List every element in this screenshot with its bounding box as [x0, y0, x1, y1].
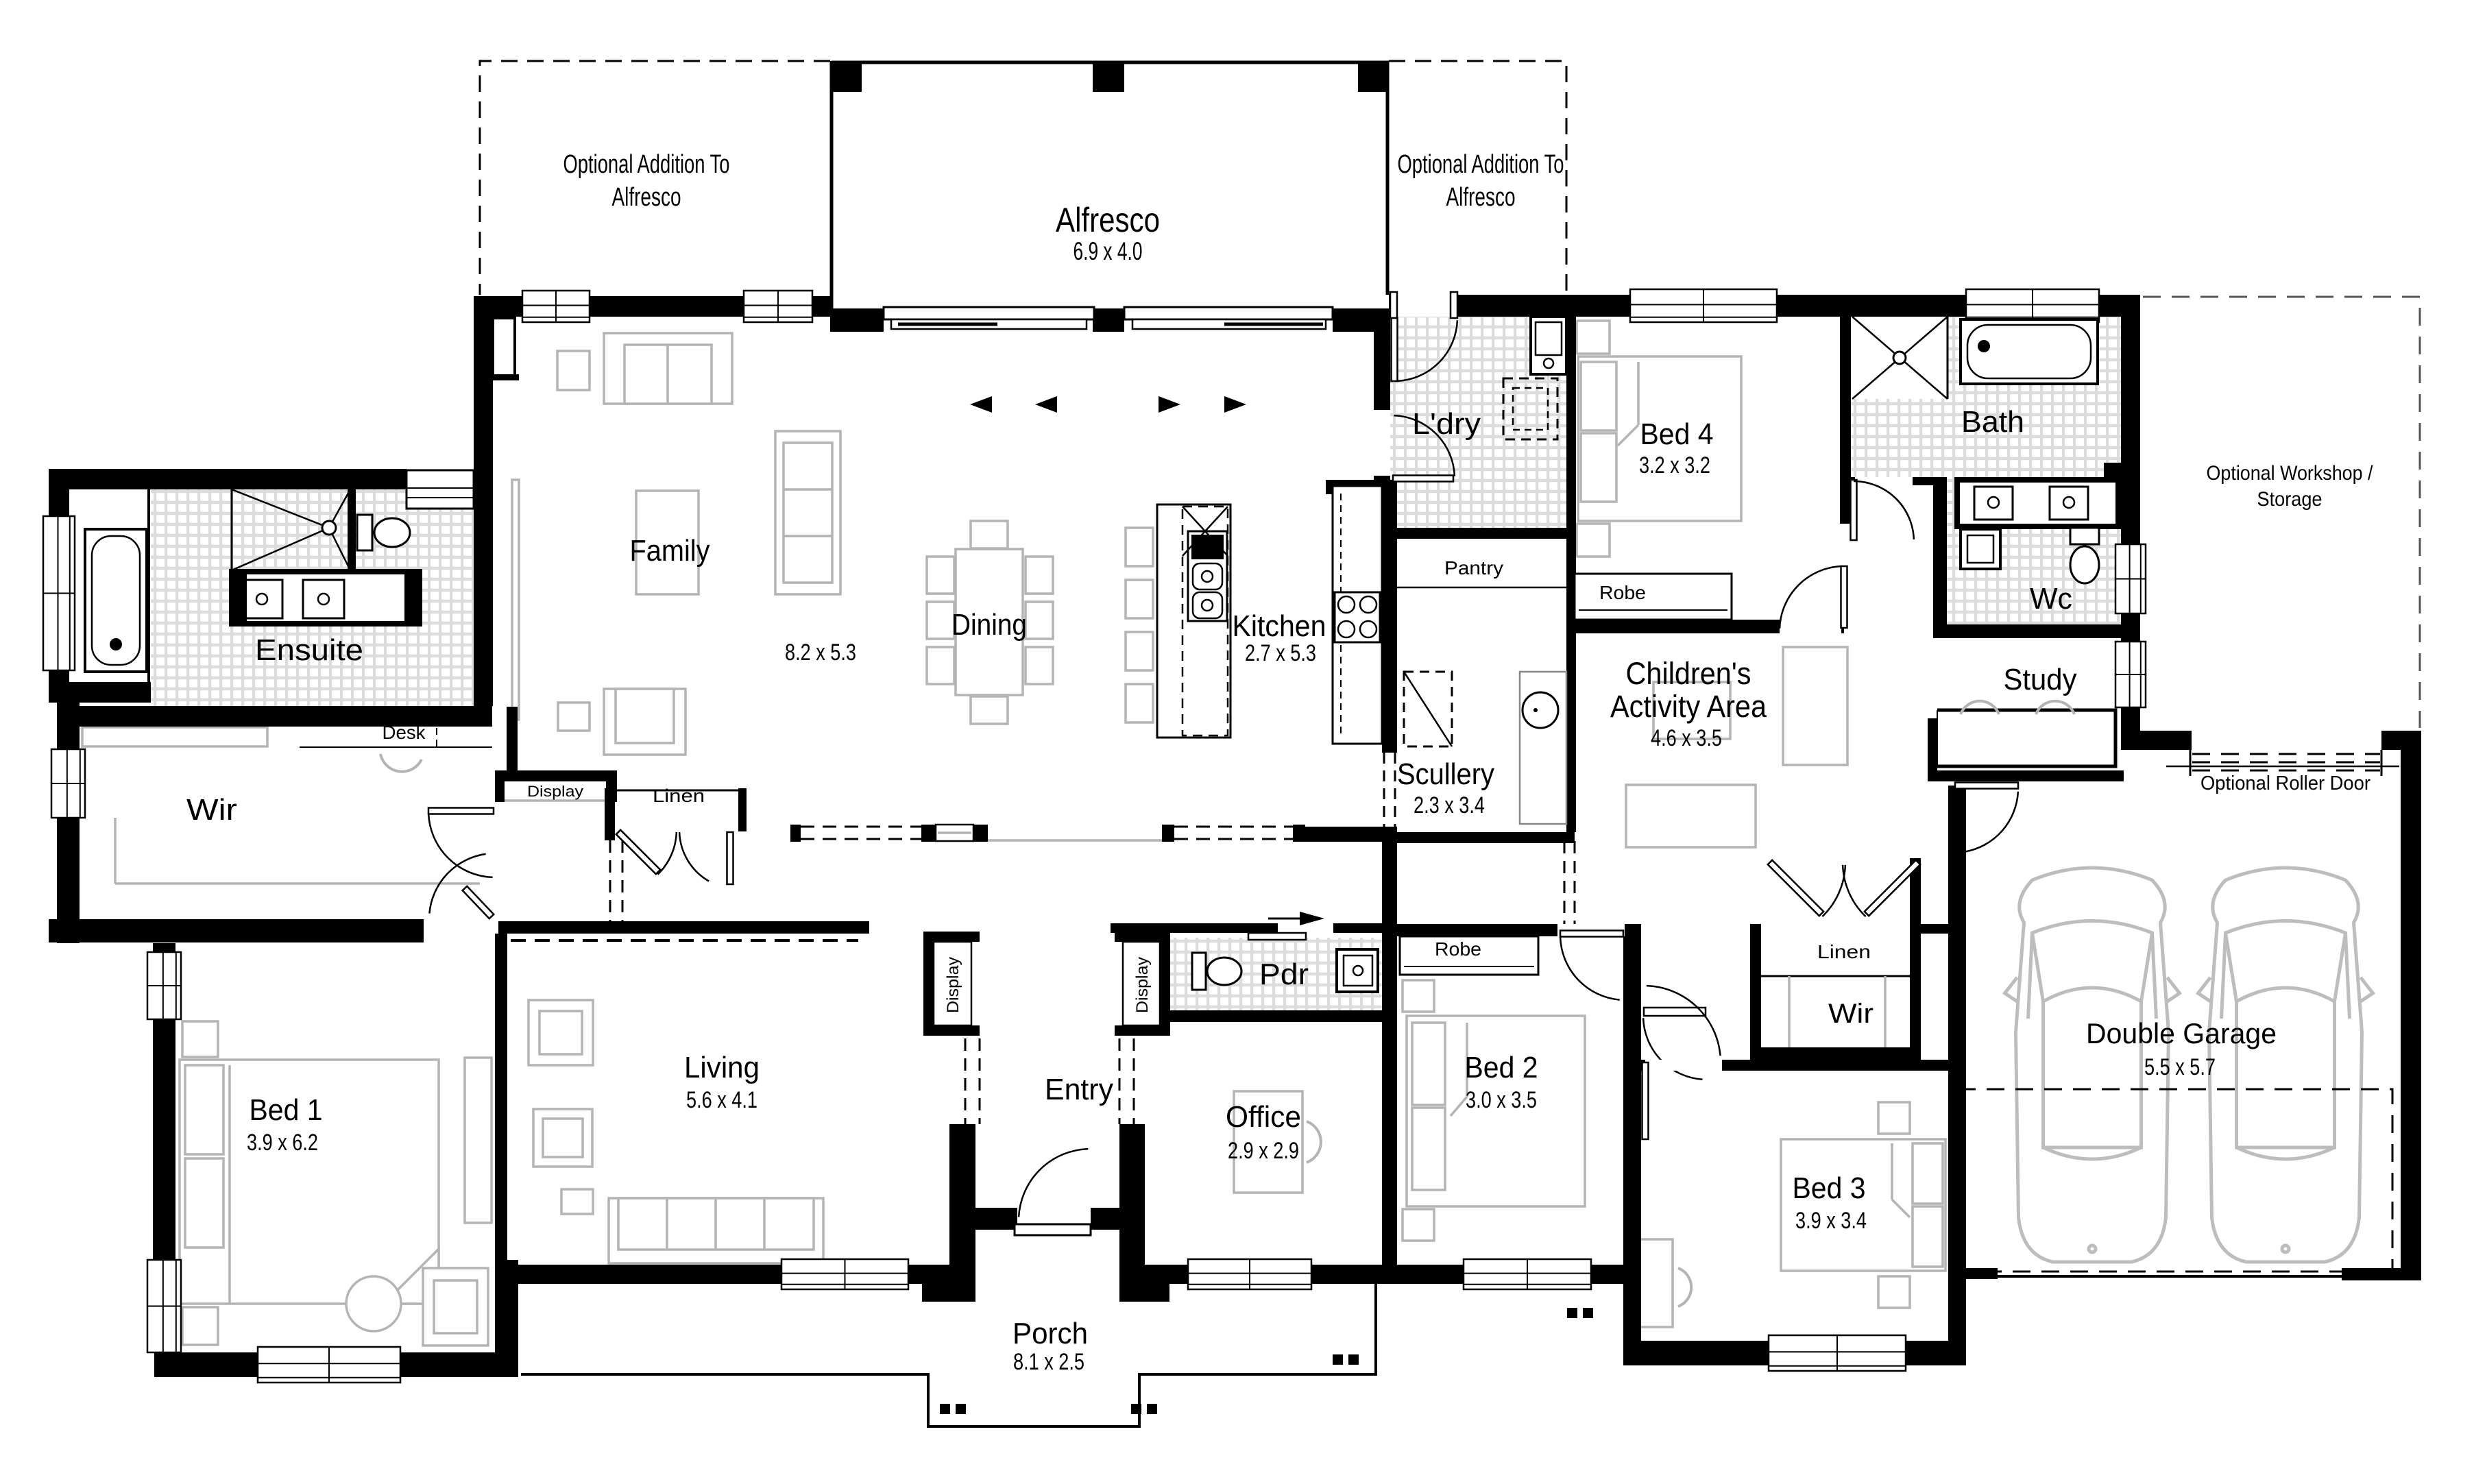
svg-text:Display: Display: [1133, 957, 1152, 1013]
svg-text:8.1 x 2.5: 8.1 x 2.5: [1013, 1349, 1084, 1375]
svg-text:Bed 4: Bed 4: [1640, 417, 1714, 451]
svg-text:Alfresco: Alfresco: [1056, 201, 1160, 239]
svg-text:8.2 x 5.3: 8.2 x 5.3: [785, 640, 856, 666]
svg-text:3.0 x 3.5: 3.0 x 3.5: [1466, 1087, 1537, 1113]
svg-text:Optional Roller Door: Optional Roller Door: [2200, 773, 2370, 794]
svg-text:Robe: Robe: [1599, 582, 1646, 603]
svg-text:Study: Study: [2004, 663, 2077, 696]
svg-text:2.9 x 2.9: 2.9 x 2.9: [1228, 1138, 1299, 1164]
svg-text:Porch: Porch: [1012, 1317, 1088, 1350]
svg-text:Linen: Linen: [1817, 941, 1871, 962]
svg-text:Bed 1: Bed 1: [250, 1093, 323, 1127]
svg-text:4.6 x 3.5: 4.6 x 3.5: [1651, 725, 1722, 751]
svg-text:Scullery: Scullery: [1397, 757, 1494, 791]
svg-text:Pantry: Pantry: [1444, 557, 1503, 579]
svg-text:Robe: Robe: [1435, 938, 1481, 960]
svg-text:Office: Office: [1226, 1100, 1301, 1134]
svg-text:6.9 x 4.0: 6.9 x 4.0: [1074, 237, 1143, 265]
svg-text:Bed 2: Bed 2: [1465, 1051, 1538, 1084]
svg-text:Double Garage: Double Garage: [2086, 1017, 2277, 1049]
svg-text:Family: Family: [630, 534, 710, 568]
svg-text:3.9 x 3.4: 3.9 x 3.4: [1795, 1208, 1867, 1234]
svg-text:Entry: Entry: [1045, 1073, 1113, 1106]
svg-text:Pdr: Pdr: [1259, 958, 1309, 991]
svg-text:Dining: Dining: [951, 608, 1027, 642]
svg-text:L'dry: L'dry: [1412, 407, 1481, 441]
svg-text:Kitchen: Kitchen: [1233, 609, 1326, 643]
svg-text:Activity Area: Activity Area: [1610, 689, 1767, 724]
svg-text:2.3 x 3.4: 2.3 x 3.4: [1414, 792, 1485, 818]
svg-text:Display: Display: [944, 957, 962, 1013]
svg-text:Wir: Wir: [186, 793, 237, 827]
svg-text:3.9 x 6.2: 3.9 x 6.2: [247, 1130, 318, 1156]
svg-text:Wc: Wc: [2030, 582, 2072, 616]
svg-text:Alfresco: Alfresco: [1446, 183, 1516, 212]
svg-text:5.6 x 4.1: 5.6 x 4.1: [686, 1087, 757, 1113]
svg-text:Living: Living: [684, 1051, 760, 1084]
svg-text:Bath: Bath: [1961, 405, 2024, 439]
svg-text:5.5 x 5.7: 5.5 x 5.7: [2144, 1054, 2216, 1080]
svg-text:Children's: Children's: [1626, 656, 1751, 691]
svg-text:Desk: Desk: [383, 722, 426, 743]
svg-text:Ensuite: Ensuite: [255, 633, 363, 667]
svg-text:Bed 3: Bed 3: [1793, 1171, 1866, 1205]
svg-text:Linen: Linen: [653, 786, 705, 806]
svg-text:Optional Addition To: Optional Addition To: [1398, 150, 1564, 179]
svg-text:3.2 x 3.2: 3.2 x 3.2: [1639, 452, 1710, 478]
svg-text:Wir: Wir: [1828, 999, 1873, 1029]
svg-text:Display: Display: [527, 783, 583, 800]
svg-text:2.7 x 5.3: 2.7 x 5.3: [1245, 640, 1316, 666]
svg-text:Storage: Storage: [2257, 488, 2323, 511]
svg-text:Optional Addition To: Optional Addition To: [563, 150, 730, 179]
svg-text:Alfresco: Alfresco: [612, 183, 681, 212]
svg-text:Optional Workshop /: Optional Workshop /: [2207, 462, 2374, 485]
